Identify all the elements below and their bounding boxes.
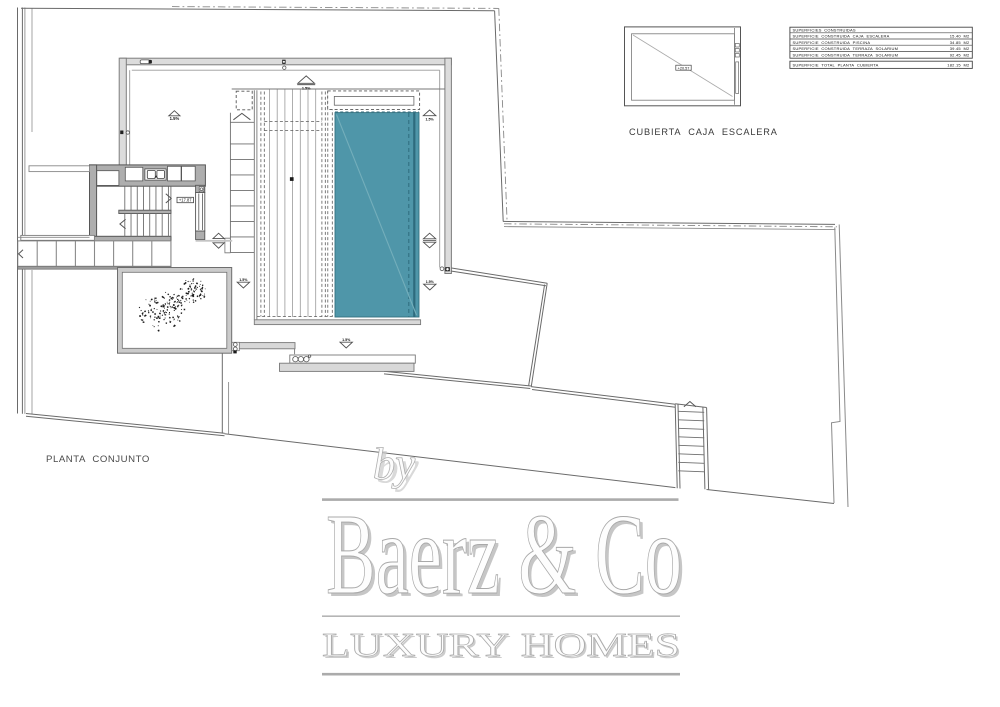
svg-text:SUPERFICIE TOTAL PLANTA CUB: SUPERFICIE TOTAL PLANTA CUBIERTA: [793, 63, 879, 68]
svg-text:SUPERFICIES CONSTRUIDAS: SUPERFICIES CONSTRUIDAS: [793, 27, 856, 32]
svg-text:1.5%: 1.5%: [426, 280, 435, 284]
svg-text:SUPERFICIE CONSTRUIDA CAJA: SUPERFICIE CONSTRUIDA CAJA ESCALERA: [793, 34, 890, 39]
svg-text:34.85 M2: 34.85 M2: [950, 40, 970, 45]
svg-text:Baerz & Co: Baerz & Co: [326, 491, 682, 619]
svg-text:1.5%: 1.5%: [342, 338, 351, 342]
svg-text:+20.57: +20.57: [678, 66, 690, 70]
svg-text:39.45 M2: 39.45 M2: [950, 46, 970, 51]
svg-text:SUPERFICIE CONSTRUIDA TERRAZ: SUPERFICIE CONSTRUIDA TERRAZA SOLARIUM: [793, 52, 899, 57]
svg-text:+17.87: +17.87: [179, 198, 192, 203]
svg-text:182.15 M2: 182.15 M2: [947, 63, 970, 68]
svg-text:SUPERFICIE CONSTRUIDA PISCIN: SUPERFICIE CONSTRUIDA PISCINA: [793, 40, 871, 45]
svg-text:PLANTA CONJUNTO: PLANTA CONJUNTO: [46, 454, 150, 465]
svg-text:1.5%: 1.5%: [302, 86, 311, 90]
svg-text:15.40 M2: 15.40 M2: [950, 34, 970, 39]
svg-text:1.5%: 1.5%: [170, 116, 180, 121]
svg-text:1.5%: 1.5%: [239, 278, 248, 282]
svg-text:by: by: [373, 439, 416, 489]
svg-text:LUXURY HOMES: LUXURY HOMES: [322, 627, 680, 664]
svg-text:CUBIERTA CAJA ESCALERA: CUBIERTA CAJA ESCALERA: [629, 127, 778, 137]
svg-text:SUPERFICIE CONSTRUIDA TERRAZ: SUPERFICIE CONSTRUIDA TERRAZA SOLARIUM: [793, 46, 899, 51]
svg-text:1.5%: 1.5%: [425, 117, 434, 121]
svg-text:92.45 M2: 92.45 M2: [950, 52, 970, 57]
